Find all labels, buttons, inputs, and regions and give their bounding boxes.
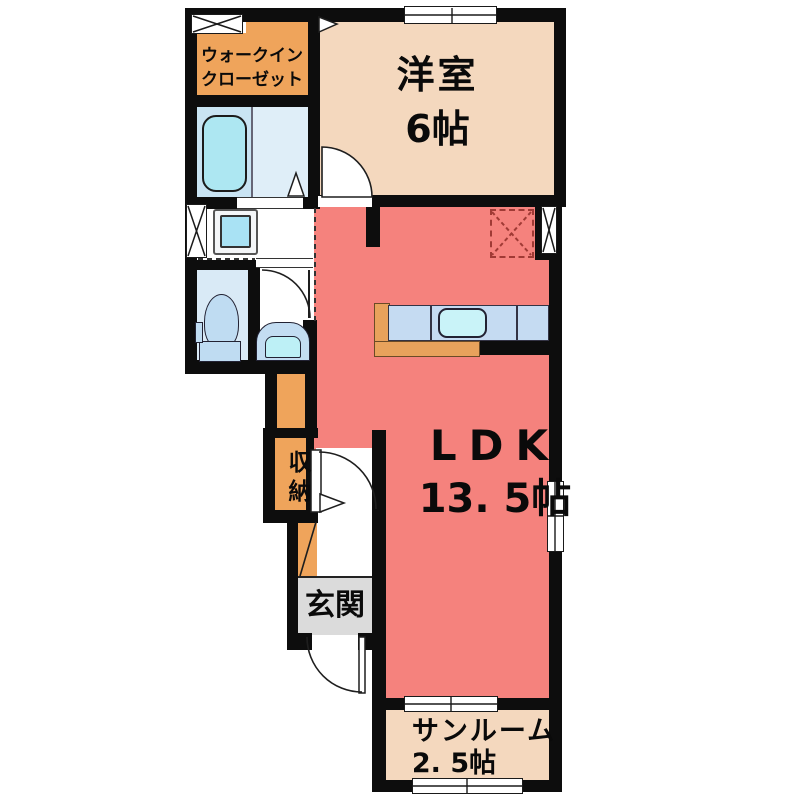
bathtub-icon bbox=[202, 115, 247, 192]
wall-strip-left bbox=[265, 374, 277, 430]
wall-strip-right bbox=[305, 374, 317, 430]
walk-in-closet-label-line1: ウォークイン bbox=[192, 48, 312, 66]
washing-machine-icon bbox=[220, 215, 251, 248]
wall-storage-left bbox=[263, 428, 275, 523]
ldk-size: 13. 5帖 bbox=[390, 478, 600, 520]
washbasin-bowl-icon bbox=[265, 336, 301, 358]
window-ldk-sunroom bbox=[404, 696, 498, 712]
ldk-name: LDK bbox=[390, 424, 600, 468]
wall-westernroom-right bbox=[554, 8, 566, 207]
wall-closet-bathroom bbox=[185, 95, 320, 107]
western-room-size: 6帖 bbox=[330, 110, 545, 150]
wall-hallway-ldk bbox=[372, 430, 386, 792]
washroom-threshold bbox=[256, 258, 313, 268]
wall-kitchen-stub bbox=[480, 340, 549, 355]
ldk-floor-lower bbox=[386, 430, 549, 698]
bathroom-door-gap bbox=[237, 197, 303, 209]
corridor-strip-upper bbox=[277, 374, 305, 430]
pillar-marker-left bbox=[186, 204, 207, 258]
kitchen-counter-edge-horizontal bbox=[374, 341, 480, 357]
western-room-door-gap bbox=[318, 196, 372, 207]
wall-under-toilet bbox=[185, 360, 317, 374]
hallway-floor bbox=[316, 448, 372, 577]
storage-label: 収納 bbox=[277, 444, 309, 514]
walk-in-closet-label-line2: クローゼット bbox=[192, 72, 312, 90]
window-sunroom-bottom bbox=[412, 778, 523, 794]
pillar-marker-top-left bbox=[191, 14, 243, 34]
pillar-marker-right bbox=[541, 206, 557, 254]
entrance-label: 玄関 bbox=[298, 590, 372, 622]
entrance-door-gap bbox=[312, 636, 358, 648]
kitchen-sink-icon bbox=[438, 308, 487, 338]
bathroom-floor-drying-area bbox=[252, 107, 308, 197]
corridor-strip-lower bbox=[298, 520, 317, 577]
bathroom-divider-line bbox=[251, 107, 253, 197]
ldk-floor-passage bbox=[314, 430, 376, 450]
entrance-step-line bbox=[298, 576, 372, 578]
wall-lower-left bbox=[287, 520, 298, 638]
sunroom-size: 2. 5帖 bbox=[384, 750, 524, 778]
kitchen-counter-divider-2 bbox=[516, 305, 518, 341]
floor-plan: ウォークイン クローゼット 洋室 6帖 LDK 13. 5帖 収納 玄関 サンル… bbox=[0, 0, 800, 800]
toilet-control-icon bbox=[195, 322, 203, 343]
wall-westernroom-door-stub bbox=[366, 207, 380, 247]
wall-closet-westernroom bbox=[308, 8, 320, 207]
wall-entrance-bottom-left bbox=[287, 633, 312, 650]
western-room-name: 洋室 bbox=[330, 56, 545, 96]
sunroom-name: サンルーム bbox=[404, 718, 564, 746]
kitchen-counter-divider-1 bbox=[430, 305, 432, 341]
window-western-room-top bbox=[404, 6, 497, 24]
refrigerator-space bbox=[490, 209, 534, 258]
wall-entrance-bottom-right bbox=[358, 633, 386, 650]
toilet-tank-icon bbox=[199, 341, 241, 362]
